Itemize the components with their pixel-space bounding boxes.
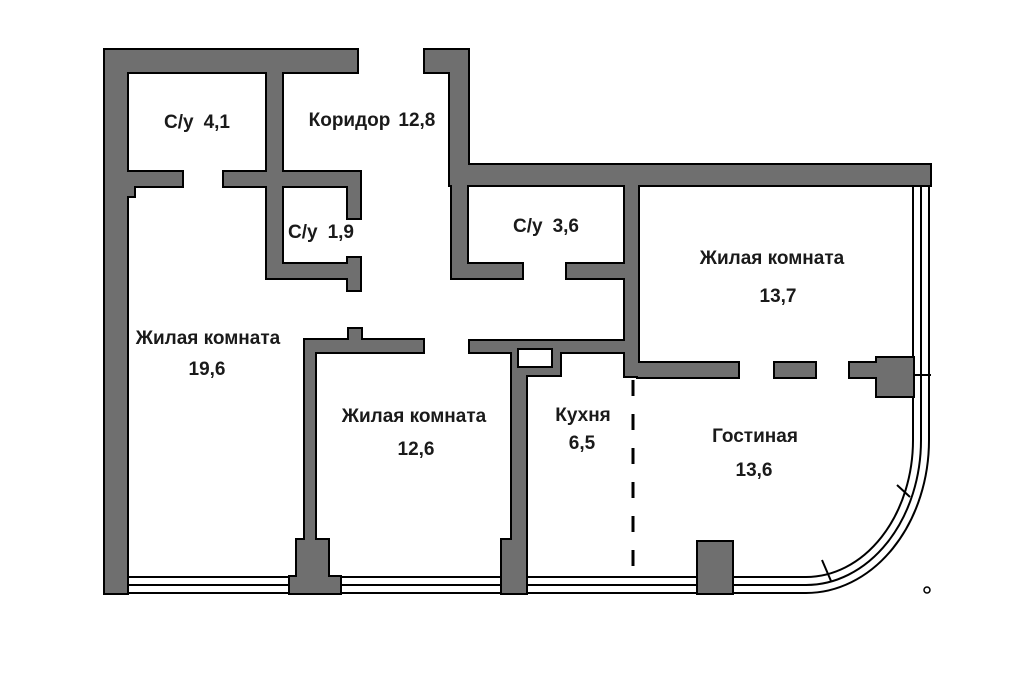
room-area: 1,9 [328, 222, 354, 243]
room-name: С/у [288, 222, 318, 243]
room-label-su-41: С/у4,1 [164, 112, 230, 133]
vent-shaft-opening [518, 349, 552, 367]
room-label-zhilaya-126-name: Жилая комната [341, 406, 487, 427]
floor-plan-page: С/у4,1 Коридор12,8 С/у1,9 С/у3,6 Жилая к… [0, 0, 1024, 682]
window-corner-arc-inner [806, 440, 913, 577]
window-lines [127, 185, 931, 593]
room-name: Коридор [309, 110, 391, 131]
room-label-koridor: Коридор12,8 [309, 110, 436, 131]
room-label-zhilaya-196-name: Жилая комната [135, 328, 281, 349]
room-label-gostinaya-name: Гостиная [712, 426, 798, 447]
room-name: С/у [164, 112, 194, 133]
room-area: 3,6 [553, 216, 579, 237]
room-label-su-36: С/у3,6 [513, 216, 579, 237]
room-label-zhilaya-137-name: Жилая комната [699, 248, 845, 269]
room-label-zhilaya-196-area: 19,6 [189, 359, 226, 380]
room-label-su-19: С/у1,9 [288, 222, 354, 243]
room-label-zhilaya-137-area: 13,7 [760, 286, 797, 307]
room-area: 12,8 [398, 110, 435, 131]
room-label-kuhnya-name: Кухня [555, 405, 611, 426]
dot-marker [924, 587, 930, 593]
window-mullion-ticks [822, 375, 931, 581]
window-right-lines [913, 185, 929, 440]
room-name: С/у [513, 216, 543, 237]
room-area: 4,1 [204, 112, 231, 133]
room-label-zhilaya-126-area: 12,6 [398, 439, 435, 460]
room-label-kuhnya-area: 6,5 [569, 433, 596, 454]
room-label-gostinaya-area: 13,6 [736, 460, 773, 481]
floor-plan: С/у4,1 Коридор12,8 С/у1,9 С/у3,6 Жилая к… [0, 0, 1024, 682]
